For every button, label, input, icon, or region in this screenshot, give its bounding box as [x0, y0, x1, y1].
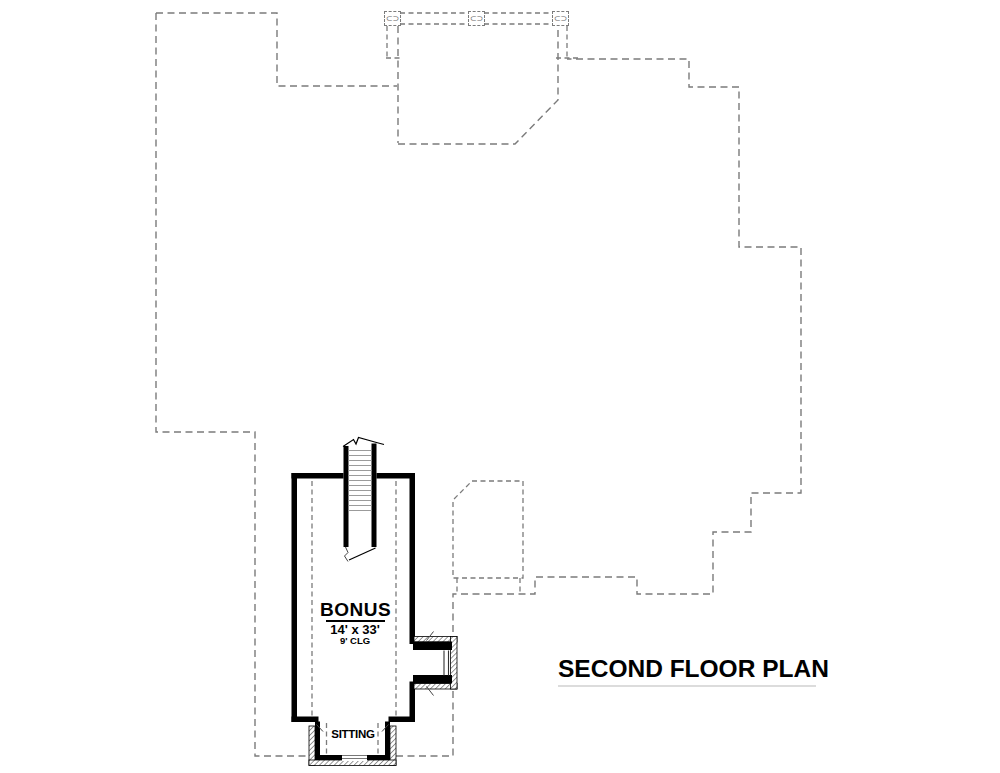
roof-vent-icon: ⊂⊃: [554, 14, 567, 23]
floor-plan-drawing: [0, 0, 1000, 773]
stair-entry-line: [349, 548, 376, 560]
chimney-ticks: [457, 578, 520, 592]
porch-band: [386, 13, 578, 144]
roof-outline-left: [156, 13, 310, 756]
wall-left: [292, 473, 298, 722]
bay-hatch-left: [309, 726, 315, 766]
staircase: [343, 438, 384, 562]
wall-top-left-seg: [292, 473, 344, 479]
dormer: [413, 632, 457, 696]
roof-vent-icon: ⊂⊃: [470, 14, 483, 23]
stair-break-line-top: [343, 438, 384, 447]
floor-plan-canvas: ⊂⊃ ⊂⊃ ⊂⊃ BONUS 14' x 33' 9' CLG SITTING …: [0, 0, 1000, 773]
dormer-window-glazing: [444, 651, 449, 676]
roof-outline-top-left: [156, 13, 397, 86]
roof-outline: [156, 13, 801, 756]
wall-right-upper: [410, 473, 416, 644]
bay-hatch-right: [390, 726, 396, 766]
bonus-room-name: BONUS: [320, 599, 390, 621]
stair-wall-right: [372, 444, 377, 548]
plan-title: SECOND FLOOR PLAN: [558, 655, 816, 687]
wall-bottom-right-seg: [389, 717, 416, 723]
chimney-shape: [453, 481, 523, 578]
stair-treads: [349, 451, 372, 511]
chimney-outline: [453, 481, 523, 592]
stair-wall-left: [344, 446, 349, 547]
roof-outline-bottom-center: [396, 690, 453, 756]
porch-outer-verticals: [387, 26, 567, 58]
roof-outline-bottom-right: [453, 59, 801, 632]
sitting-area-name: SITTING: [330, 728, 376, 740]
dormer-wall-top: [413, 642, 452, 651]
stair-break-line-bottom: [345, 547, 349, 562]
roof-vent-1: ⊂⊃: [384, 11, 401, 26]
wall-bottom-left-seg: [292, 717, 319, 723]
wall-top-right-seg: [377, 473, 416, 479]
roof-vent-2: ⊂⊃: [468, 11, 485, 26]
bonus-room-ceiling-height: 9' CLG: [318, 635, 392, 646]
roof-vent-3: ⊂⊃: [552, 11, 569, 26]
roof-vent-icon: ⊂⊃: [386, 14, 399, 23]
entry-bay-outline: [398, 26, 558, 144]
dormer-wall-bottom: [413, 675, 452, 684]
